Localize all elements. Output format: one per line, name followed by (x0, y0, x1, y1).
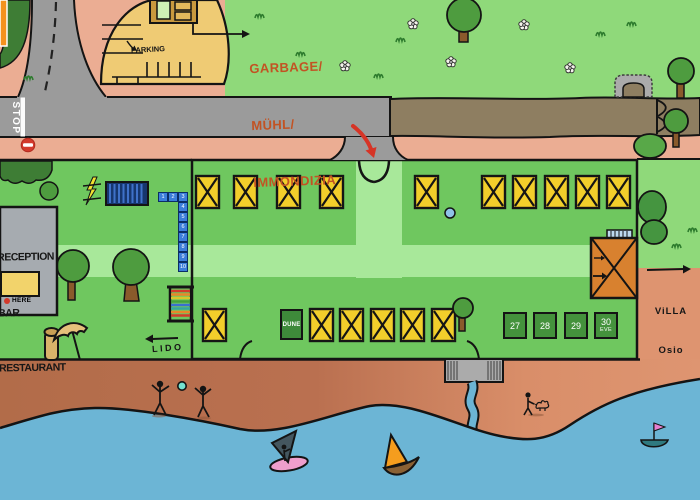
numbered-tile: 10 (178, 262, 188, 272)
pitch-number: 30 (601, 318, 611, 326)
numbered-pitch: 27 (503, 312, 527, 339)
dune-pitch: DUNE (280, 309, 303, 340)
here-dot-icon (4, 298, 10, 304)
here-label: HERE (12, 297, 31, 304)
numbered-tile: 2 (168, 192, 178, 202)
numbered-tile: 1 (158, 192, 168, 202)
orange-building (591, 230, 637, 298)
pitch-number: 29 (571, 322, 581, 330)
villa-path (637, 268, 700, 363)
campsite-map: STOP PARKING GARBAGE/ MÜHL/ IMMONDIZIA R… (0, 0, 700, 500)
pitch-number: 28 (540, 322, 550, 330)
stop-line (21, 98, 26, 137)
beachball-icon (178, 382, 186, 390)
ball-icon (445, 208, 455, 218)
numbered-tile: 4 (178, 202, 188, 212)
numbered-tiles-row: 1 2 3 (158, 192, 188, 202)
hut-door (157, 1, 170, 19)
bush-icon (638, 191, 667, 244)
here-marker: HERE (4, 297, 31, 304)
map-drawing (0, 0, 700, 500)
garbage-hut (150, 0, 197, 23)
bush-icon (634, 134, 666, 158)
stone-arch (615, 75, 652, 97)
bush-icon (40, 182, 58, 200)
numbered-tile: 5 (178, 212, 188, 222)
solar-panel (106, 182, 148, 205)
ladder-icon (167, 287, 194, 321)
pitch-number: 27 (510, 322, 520, 330)
numbered-tile: 8 (178, 242, 188, 252)
numbered-tile: 3 (178, 192, 188, 202)
main-road (0, 97, 392, 137)
stream (470, 382, 474, 434)
boardwalk (445, 359, 503, 382)
numbered-pitch: 30 EVE (594, 312, 618, 339)
camp-path-vertical (356, 160, 402, 278)
corner-building (0, 0, 7, 46)
dirt-track (390, 97, 700, 137)
numbered-pitch: 29 (564, 312, 588, 339)
numbered-tile: 9 (178, 252, 188, 262)
numbered-tile: 7 (178, 232, 188, 242)
numbered-tiles-column: 4 5 6 7 8 9 10 (178, 202, 188, 272)
info-board (1, 272, 39, 296)
no-entry-icon (21, 138, 35, 152)
numbered-tile: 6 (178, 222, 188, 232)
hedge-row (0, 161, 52, 183)
numbered-pitch: 28 (533, 312, 557, 339)
pitch-sub-label: EVE (600, 326, 612, 334)
